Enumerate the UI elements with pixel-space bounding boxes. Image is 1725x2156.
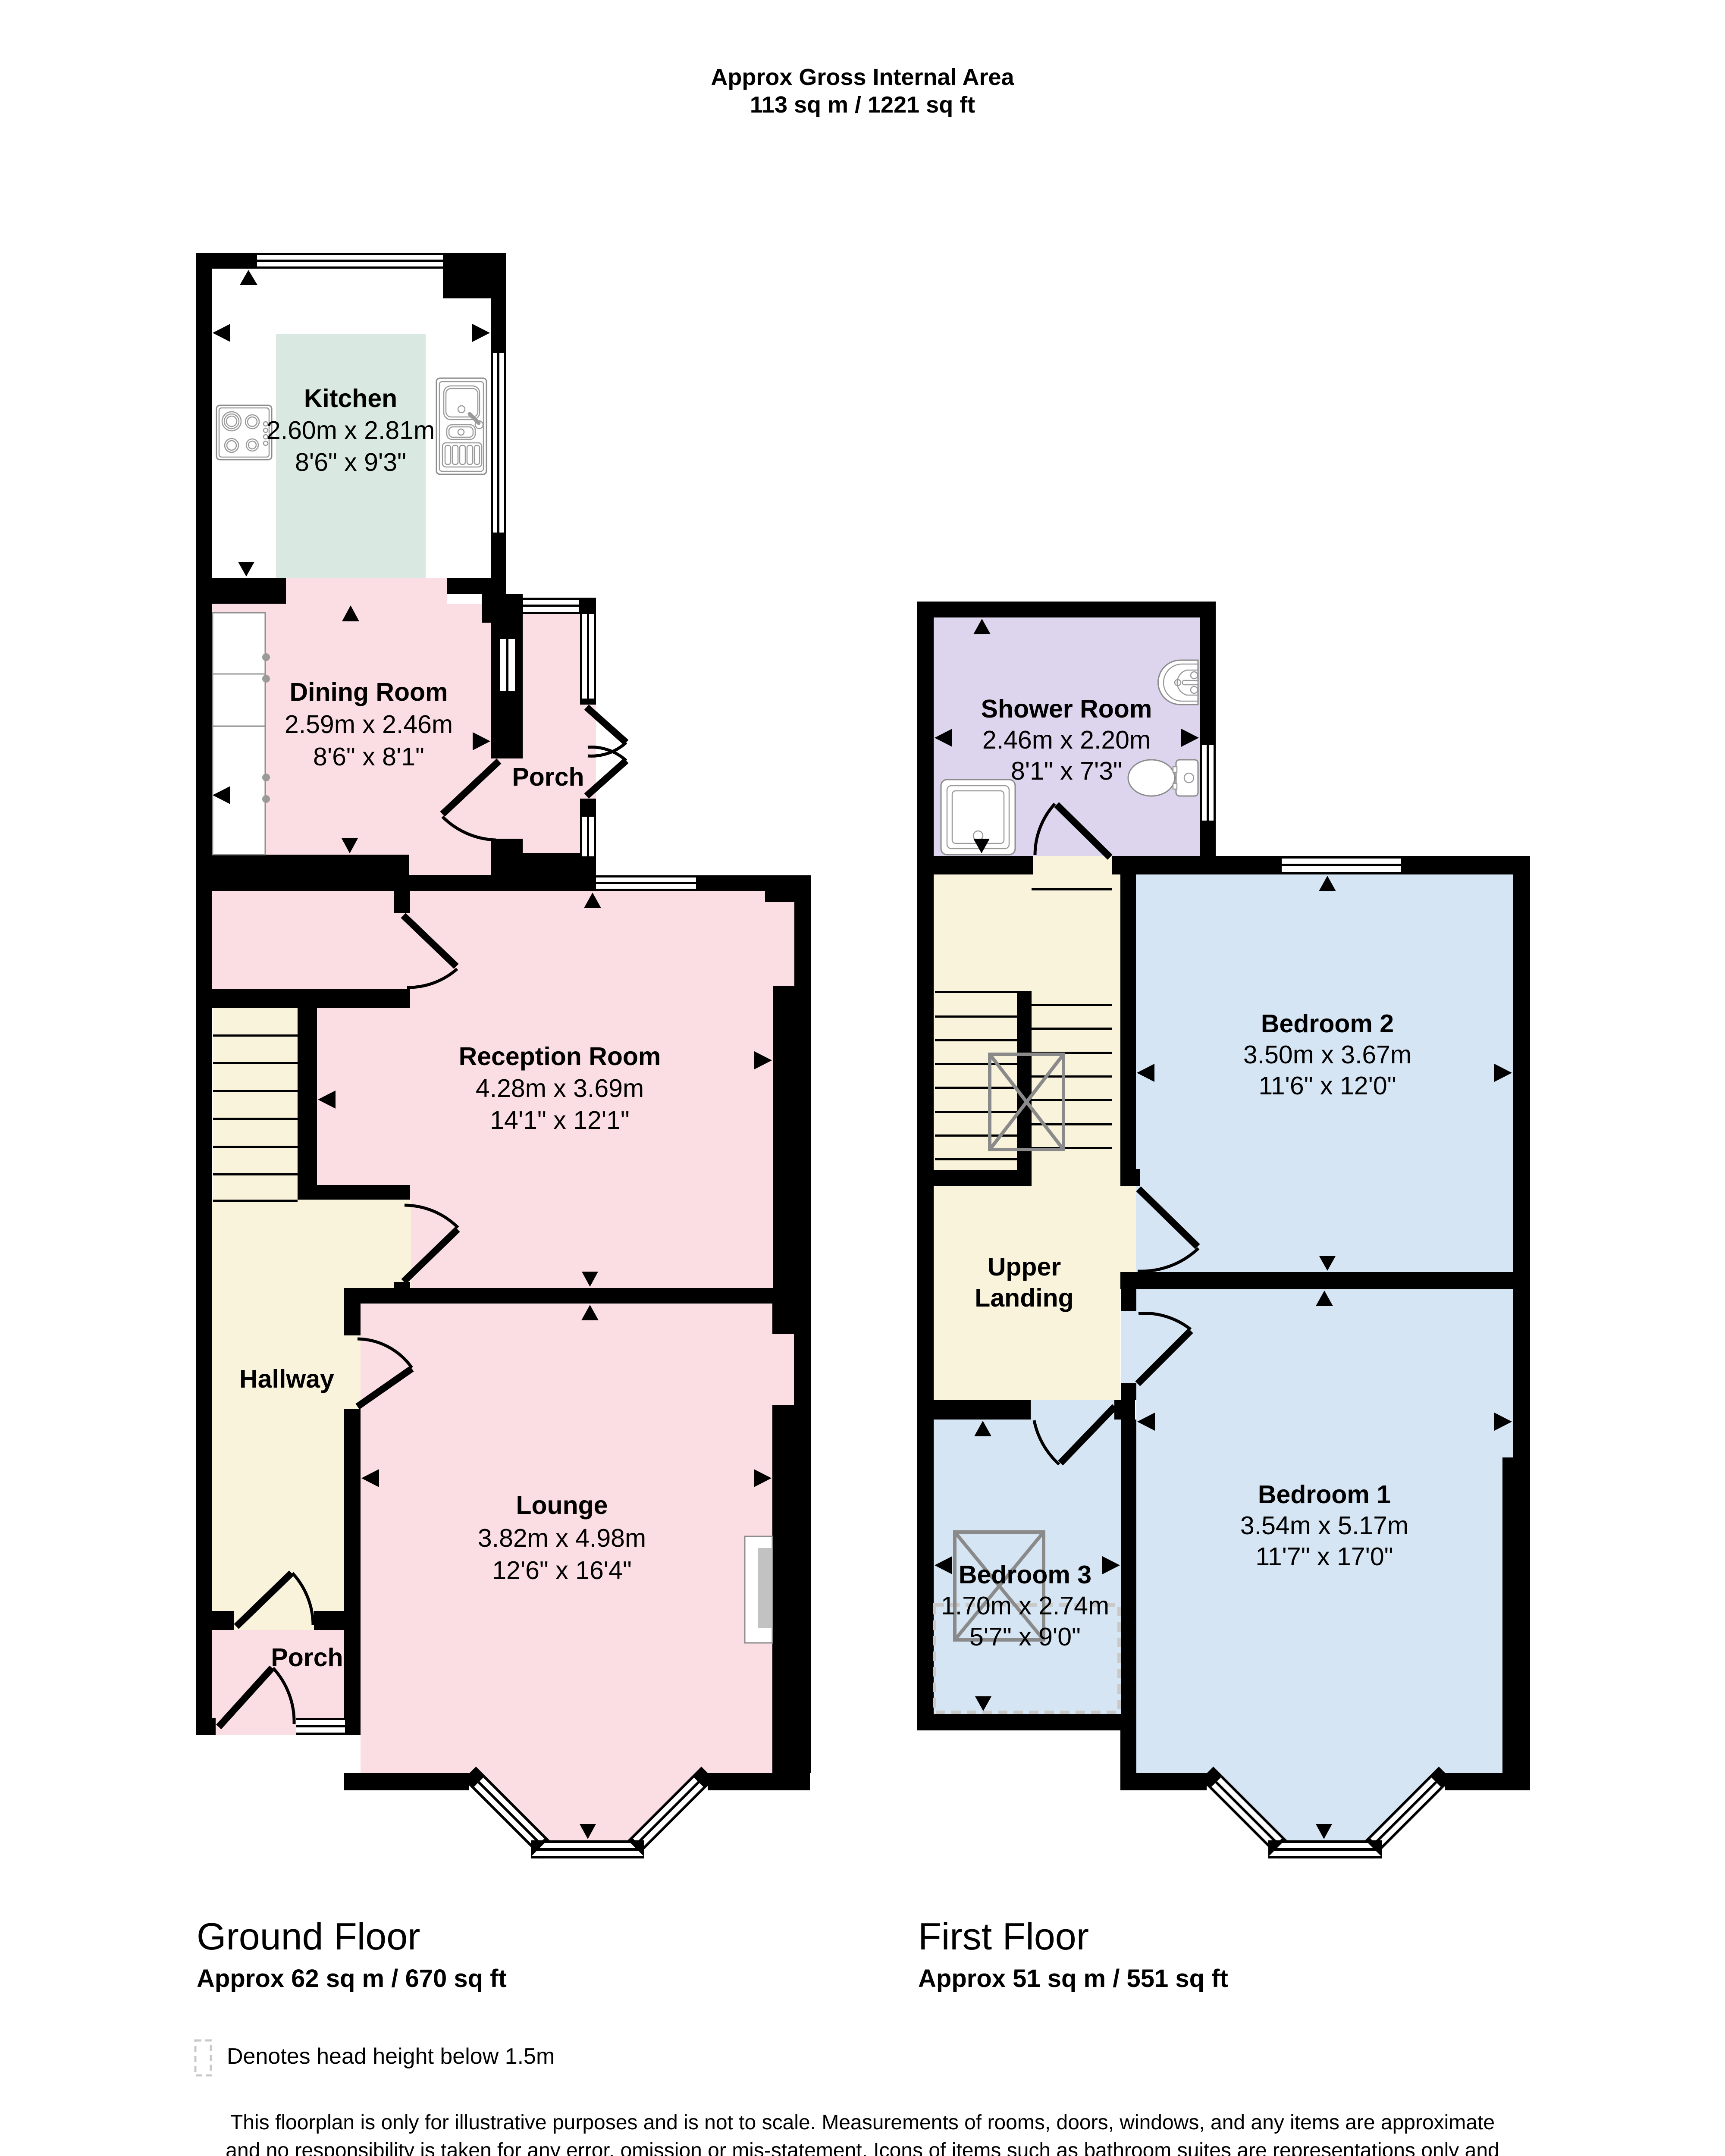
svg-text:Approx 51 sq m / 551 sq ft: Approx 51 sq m / 551 sq ft (918, 1965, 1228, 1993)
svg-text:Porch: Porch (512, 763, 584, 791)
svg-text:Bedroom 3: Bedroom 3 (959, 1561, 1091, 1589)
svg-text:Ground Floor: Ground Floor (197, 1915, 420, 1958)
svg-text:Lounge: Lounge (516, 1491, 608, 1520)
svg-text:Dining Room: Dining Room (289, 678, 448, 706)
svg-text:2.46m x 2.20m: 2.46m x 2.20m (982, 726, 1151, 754)
svg-text:2.60m x 2.81m: 2.60m x 2.81m (267, 416, 435, 445)
svg-text:Landing: Landing (975, 1284, 1073, 1312)
svg-text:3.54m x 5.17m: 3.54m x 5.17m (1240, 1511, 1408, 1540)
svg-text:Bedroom 2: Bedroom 2 (1261, 1009, 1394, 1038)
svg-text:and no responsibility is taken: and no responsibility is taken for any e… (226, 2139, 1499, 2156)
svg-text:Upper: Upper (988, 1253, 1061, 1281)
svg-text:Approx Gross Internal Area: Approx Gross Internal Area (711, 64, 1014, 90)
svg-text:14'1" x 12'1": 14'1" x 12'1" (490, 1106, 630, 1134)
svg-text:Kitchen: Kitchen (304, 384, 397, 413)
svg-text:This floorplan is only for ill: This floorplan is only for illustrative … (230, 2111, 1495, 2134)
svg-text:12'6" x 16'4": 12'6" x 16'4" (492, 1556, 632, 1585)
svg-text:Reception Room: Reception Room (459, 1042, 661, 1071)
svg-text:11'7" x 17'0": 11'7" x 17'0" (1255, 1542, 1393, 1571)
svg-text:Denotes head height below 1.5m: Denotes head height below 1.5m (227, 2044, 555, 2069)
svg-text:Approx 62 sq m / 670 sq ft: Approx 62 sq m / 670 sq ft (197, 1965, 507, 1993)
svg-text:Hallway: Hallway (239, 1365, 334, 1393)
svg-text:5'7" x 9'0": 5'7" x 9'0" (969, 1623, 1081, 1651)
svg-text:1.70m x 2.74m: 1.70m x 2.74m (941, 1592, 1109, 1620)
svg-text:Bedroom 1: Bedroom 1 (1258, 1480, 1391, 1509)
svg-text:3.50m x 3.67m: 3.50m x 3.67m (1243, 1040, 1411, 1069)
svg-text:Porch: Porch (271, 1643, 343, 1672)
svg-text:First Floor: First Floor (918, 1915, 1089, 1958)
svg-text:8'1" x 7'3": 8'1" x 7'3" (1011, 757, 1122, 785)
svg-text:8'6" x 8'1": 8'6" x 8'1" (313, 743, 424, 771)
svg-text:4.28m x 3.69m: 4.28m x 3.69m (476, 1074, 644, 1103)
svg-text:Shower Room: Shower Room (981, 695, 1152, 723)
svg-text:2.59m x 2.46m: 2.59m x 2.46m (285, 710, 453, 739)
svg-text:113 sq m / 1221 sq ft: 113 sq m / 1221 sq ft (750, 92, 975, 118)
svg-text:11'6" x 12'0": 11'6" x 12'0" (1258, 1072, 1396, 1100)
svg-text:3.82m x 4.98m: 3.82m x 4.98m (478, 1524, 646, 1552)
svg-text:8'6" x 9'3": 8'6" x 9'3" (295, 448, 406, 476)
